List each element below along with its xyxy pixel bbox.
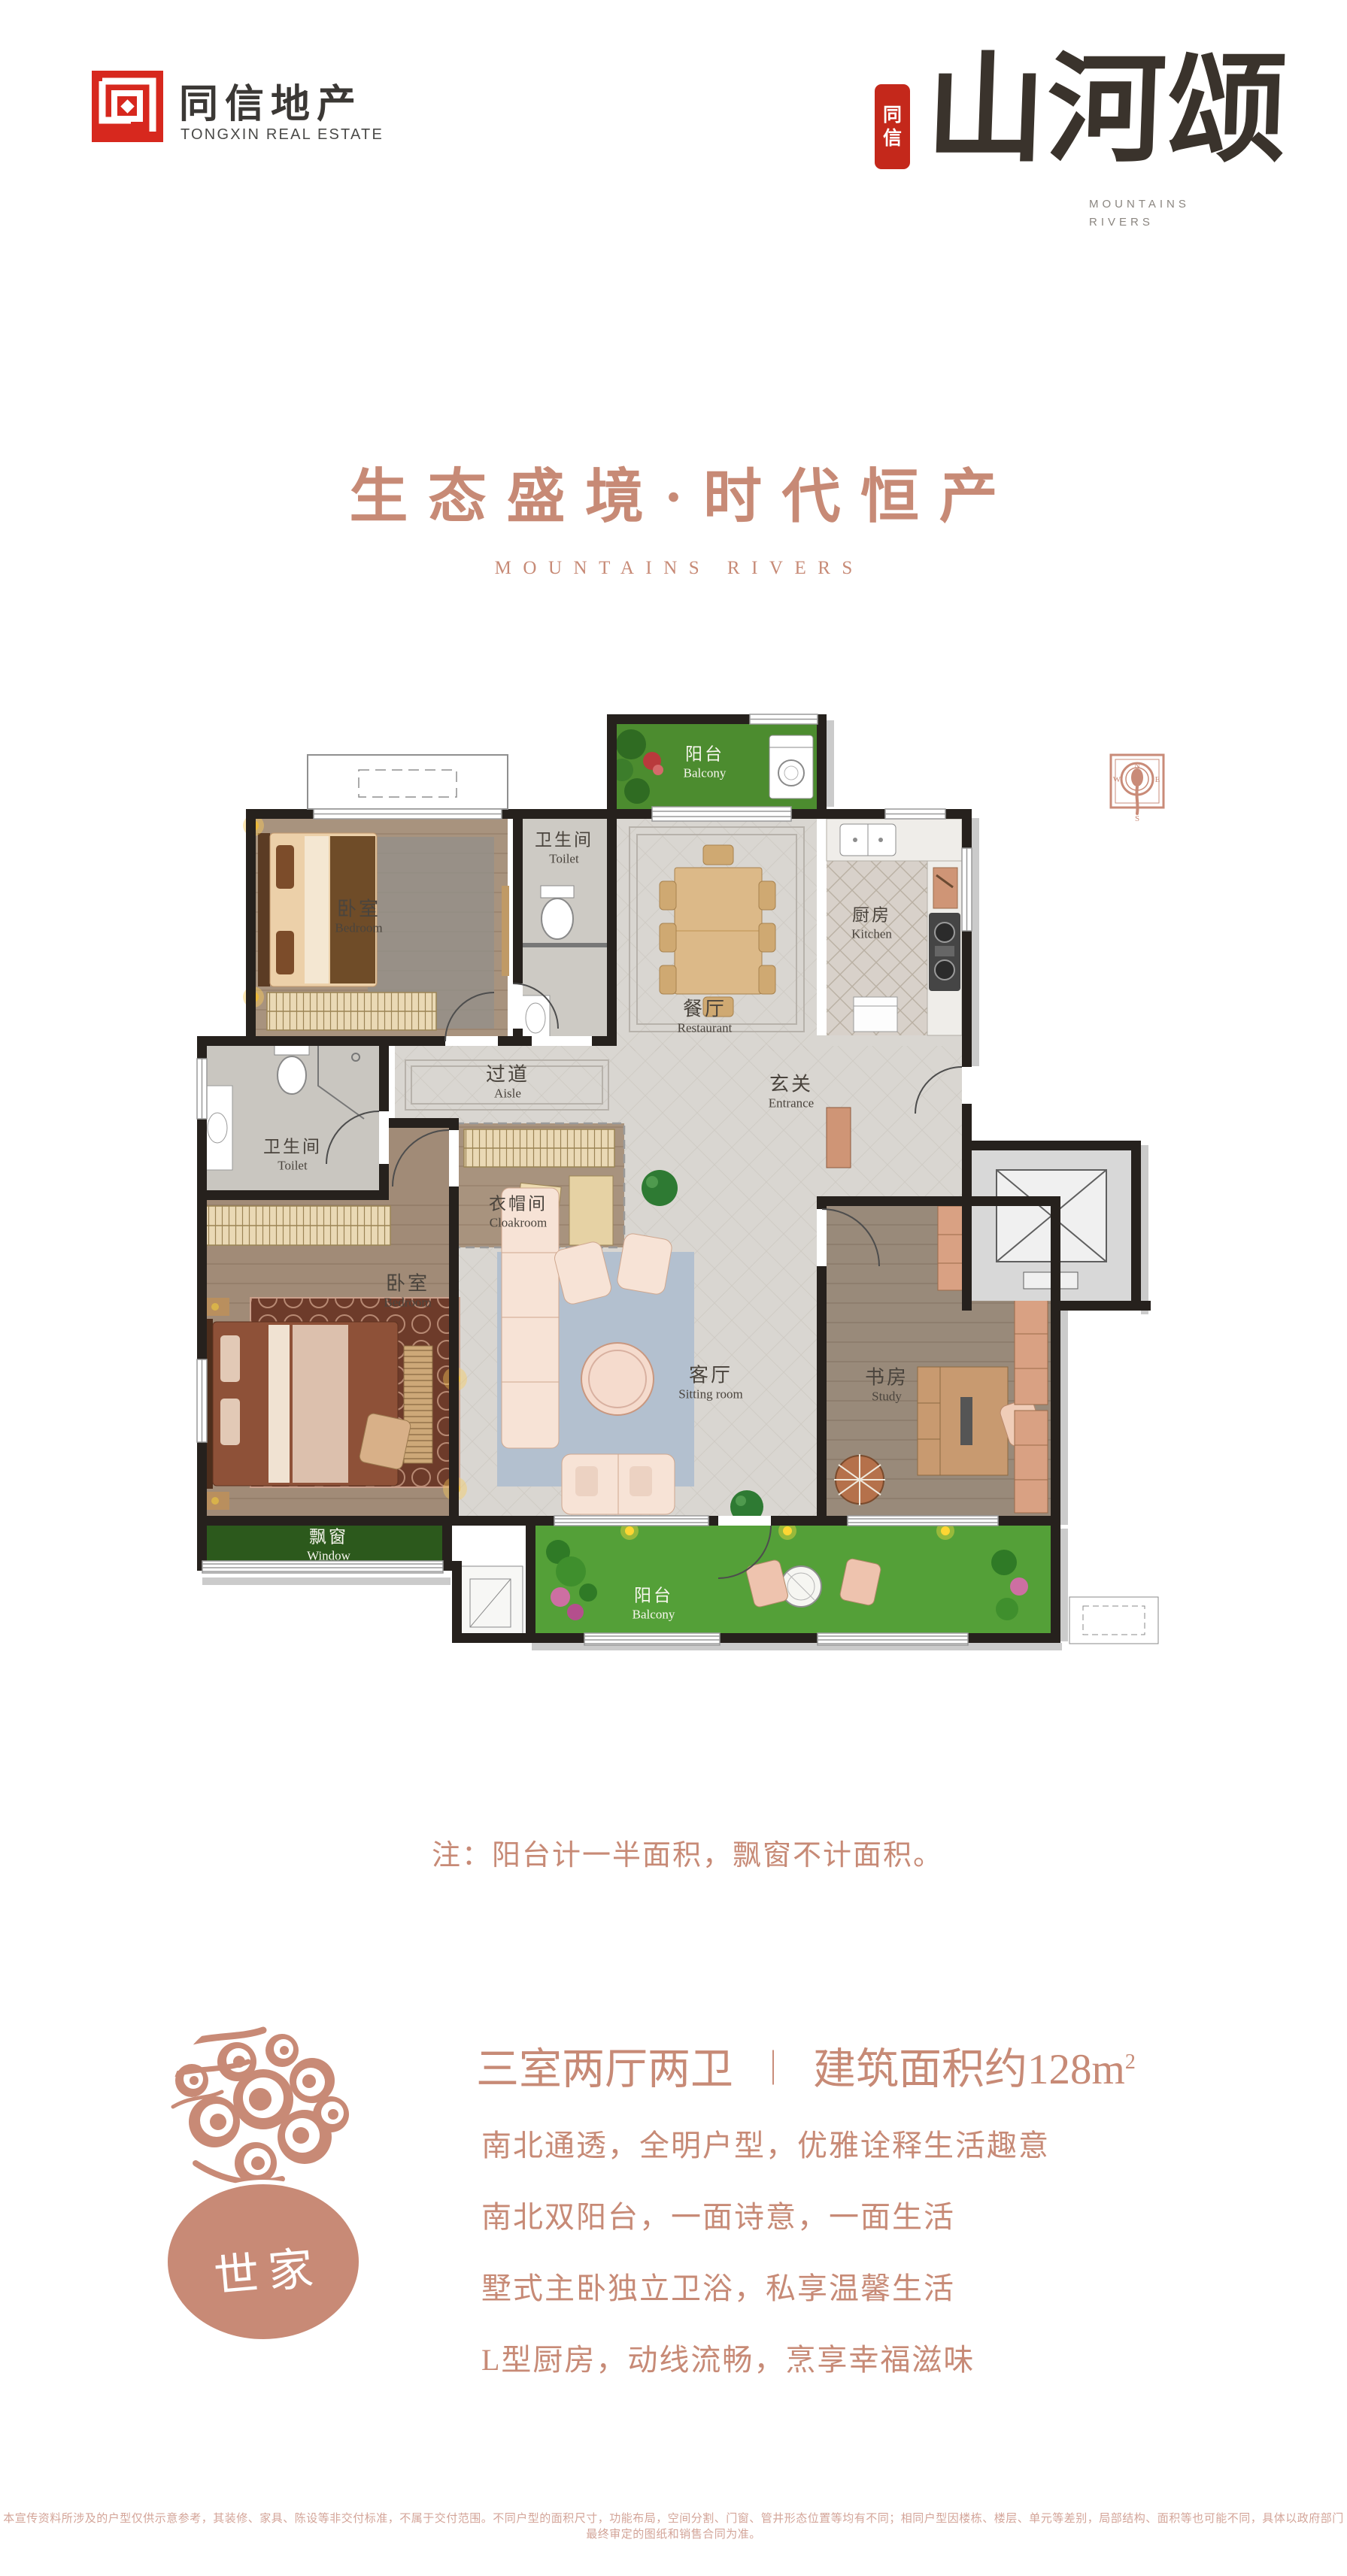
room-label-bedroom-top: 卧室Bedroom bbox=[335, 899, 382, 936]
dining-set bbox=[660, 845, 775, 1017]
room-label-entrance: 玄关Entrance bbox=[769, 1074, 814, 1111]
calligraphy-subtitle-line1: MOUNTAINS bbox=[1089, 195, 1190, 214]
room-label-study: 书房Study bbox=[865, 1368, 909, 1405]
poster-page: { "brand": { "logo_mark": "同", "name_zh"… bbox=[0, 0, 1347, 2576]
svg-text:N: N bbox=[1134, 762, 1140, 771]
unit-layout: 三室两厅两卫 bbox=[476, 2035, 733, 2096]
room-label-toilet-top: 卫生间Toilet bbox=[535, 830, 593, 867]
svg-text:E: E bbox=[1155, 775, 1160, 784]
floorplan-drawing: N E W S bbox=[178, 698, 1171, 1803]
floorplan: N E W S 阳台Balcony 卧室Bedroom 卫生间Toilet 餐厅… bbox=[178, 698, 1171, 1803]
legal-disclaimer: 本宣传资料所涉及的户型仅供示意参考，其装修、家具、陈设等非交付标准，不属于交付范… bbox=[0, 2510, 1347, 2541]
heritage-badge: 世家 bbox=[150, 2009, 376, 2355]
page-title: 生态盛境·时代恒产 bbox=[0, 450, 1347, 534]
page-subtitle: MOUNTAINS RIVERS bbox=[0, 558, 1347, 579]
seal-char-2: 信 bbox=[883, 129, 902, 149]
brand-name: 同信地产 bbox=[179, 72, 363, 129]
room-label-aisle: 过道Aisle bbox=[486, 1065, 529, 1102]
seal-stamp: 同 信 bbox=[875, 84, 910, 169]
calligraphy-subtitle: MOUNTAINS RIVERS bbox=[1089, 195, 1190, 232]
compass-icon: N E W S bbox=[1111, 755, 1163, 823]
calligraphy-subtitle-line2: RIVERS bbox=[1089, 214, 1190, 232]
brand-logo-icon bbox=[92, 71, 163, 142]
svg-text:S: S bbox=[1135, 814, 1139, 823]
room-label-balcony-bottom: 阳台Balcony bbox=[633, 1586, 675, 1623]
room-label-bay-window: 飘窗Window bbox=[307, 1527, 350, 1564]
feature-item: 南北双阳台，一面诗意，一面生活 bbox=[481, 2190, 1158, 2262]
room-label-toilet-left: 卫生间Toilet bbox=[263, 1137, 322, 1174]
room-label-sitting-room: 客厅Sitting room bbox=[678, 1365, 742, 1402]
feature-item: 南北通透，全明户型，优雅诠释生活趣意 bbox=[481, 2119, 1158, 2190]
unit-area: 建筑面积约128m2 bbox=[813, 2035, 1136, 2096]
feature-item: L型厨房，动线流畅，烹享幸福滋味 bbox=[481, 2333, 1158, 2405]
calligraphy-title: 山河颂 bbox=[924, 36, 1306, 186]
feature-item: 墅式主卧独立卫浴，私享温馨生活 bbox=[481, 2262, 1158, 2333]
area-note: 注：阳台计一半面积，飘窗不计面积。 bbox=[0, 1832, 1347, 1873]
room-label-bedroom-bottom: 卧室Bedroom bbox=[384, 1274, 431, 1311]
brand-name-en: TONGXIN REAL ESTATE bbox=[181, 126, 384, 144]
room-label-restaurant: 餐厅Restaurant bbox=[678, 999, 733, 1036]
seal-char-1: 同 bbox=[883, 105, 902, 126]
svg-text:W: W bbox=[1113, 775, 1121, 784]
title-divider: ｜ bbox=[756, 2041, 790, 2091]
room-label-cloakroom: 衣帽间Cloakroom bbox=[489, 1194, 548, 1231]
room-label-balcony-top: 阳台Balcony bbox=[684, 744, 727, 781]
room-label-kitchen: 厨房Kitchen bbox=[851, 905, 892, 942]
toilet-top-divider bbox=[518, 943, 607, 947]
area-superscript: 2 bbox=[1125, 2050, 1136, 2074]
unit-summary-title: 三室两厅两卫 ｜ 建筑面积约128m2 bbox=[476, 2035, 1136, 2096]
feature-list: 南北通透，全明户型，优雅诠释生活趣意 南北双阳台，一面诗意，一面生活 墅式主卧独… bbox=[481, 2119, 1158, 2405]
